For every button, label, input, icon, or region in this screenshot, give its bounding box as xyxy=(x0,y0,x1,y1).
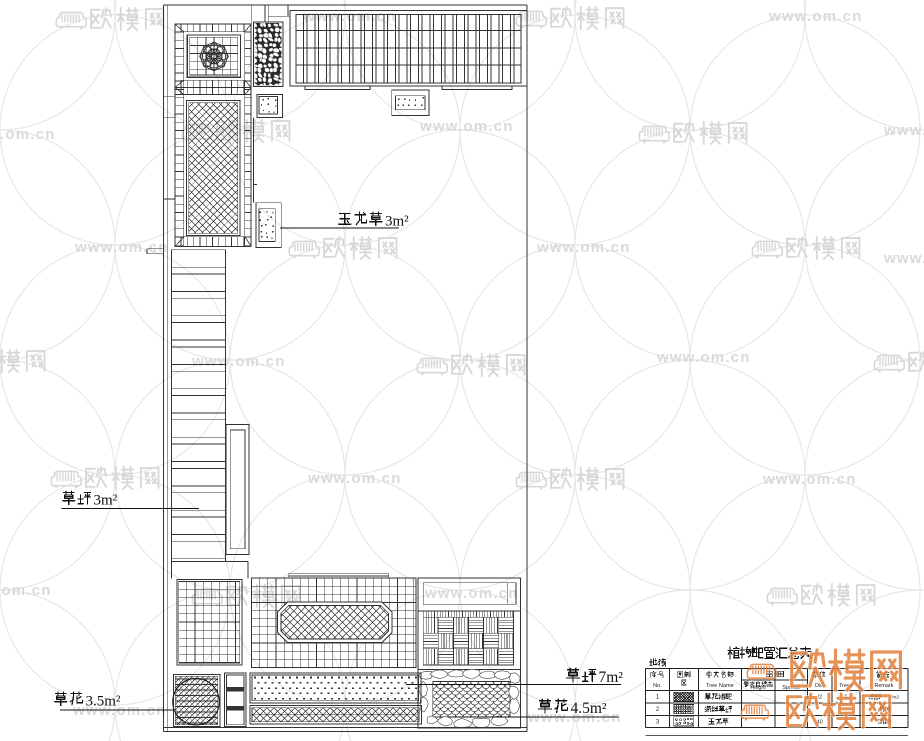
svg-text:3.5m²: 3.5m² xyxy=(86,694,121,710)
svg-text:3m²: 3m² xyxy=(385,214,409,230)
svg-text:www.om.cn: www.om.cn xyxy=(191,353,286,370)
svg-text:3m²: 3m² xyxy=(94,493,118,509)
svg-text:www.om.cn: www.om.cn xyxy=(762,471,857,488)
svg-text:www.om.cn: www.om.cn xyxy=(424,585,519,602)
svg-text:www.om.cn: www.om.cn xyxy=(768,8,863,25)
svg-text:Tree Name: Tree Name xyxy=(706,683,734,689)
svg-text:www.om.cn: www.om.cn xyxy=(0,582,52,599)
svg-text:Height: Height xyxy=(750,685,766,691)
svg-text:www.om.cn: www.om.cn xyxy=(419,118,514,135)
svg-text:www.om.cn: www.om.cn xyxy=(0,126,56,143)
svg-text:www.om.cn: www.om.cn xyxy=(883,122,924,139)
svg-text:7m²: 7m² xyxy=(599,669,624,686)
svg-text:www.om.cn: www.om.cn xyxy=(307,470,402,487)
svg-text:Remark: Remark xyxy=(874,683,893,689)
svg-text:www.om.cn: www.om.cn xyxy=(536,239,631,256)
svg-text:/m2: /m2 xyxy=(891,695,899,701)
svg-text:www.om.cn: www.om.cn xyxy=(883,250,924,267)
svg-text:www.om.cn: www.om.cn xyxy=(656,349,751,366)
svg-text:No.: No. xyxy=(653,683,662,689)
svg-text:4.5m²: 4.5m² xyxy=(571,700,607,717)
